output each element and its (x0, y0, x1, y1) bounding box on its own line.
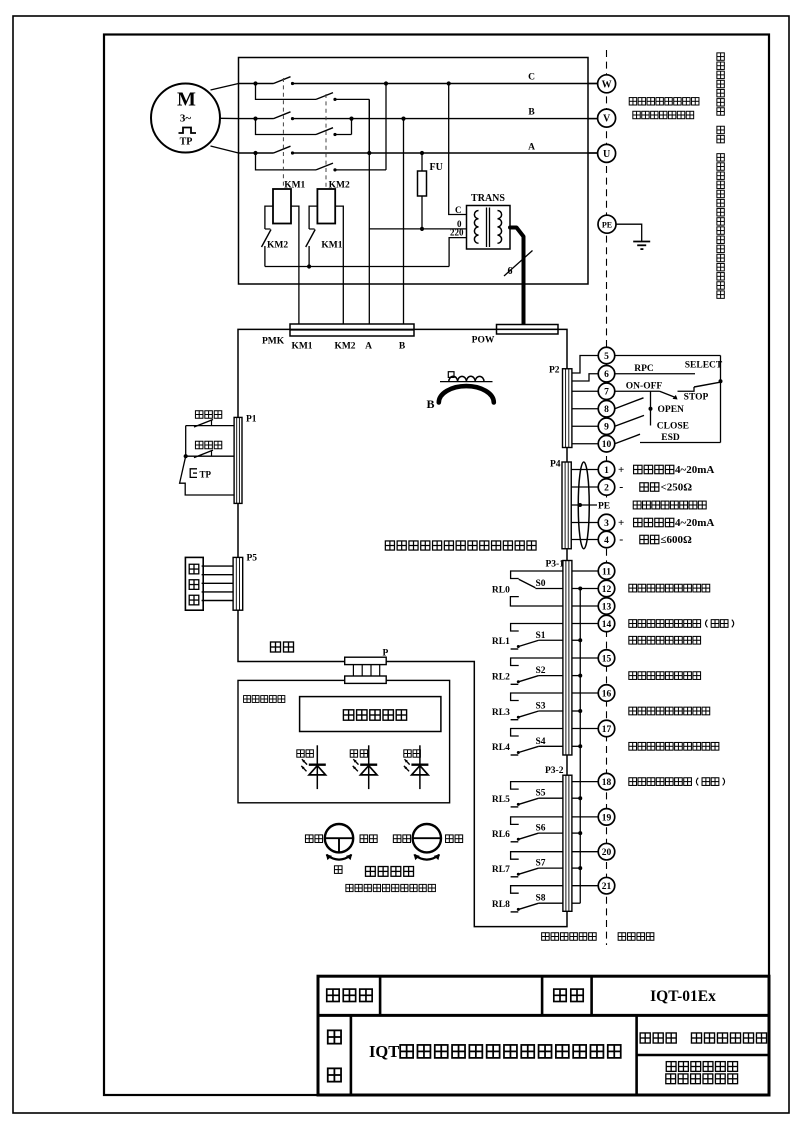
svg-text:14: 14 (602, 620, 612, 630)
svg-text:RL2: RL2 (492, 672, 510, 682)
svg-text:11: 11 (602, 567, 611, 577)
svg-text:A: A (365, 342, 372, 352)
svg-text:220: 220 (450, 228, 464, 238)
svg-text:12: 12 (602, 585, 612, 595)
svg-text:A: A (528, 143, 535, 153)
svg-text:M: M (177, 89, 196, 111)
svg-text:S8: S8 (536, 894, 546, 904)
svg-text:4: 4 (604, 536, 609, 546)
svg-text:W: W (602, 79, 612, 90)
svg-text:B: B (426, 397, 434, 411)
svg-text:P3-2: P3-2 (545, 766, 564, 776)
svg-text:RL4: RL4 (492, 743, 510, 753)
svg-text:C: C (528, 73, 535, 83)
svg-text:P2: P2 (549, 366, 560, 376)
svg-text:RL1: RL1 (492, 637, 510, 647)
svg-text:KM2: KM2 (267, 241, 288, 251)
svg-text:V: V (603, 114, 611, 125)
svg-text:TP: TP (200, 470, 212, 480)
svg-text:PE: PE (598, 501, 610, 511)
svg-text:KM1: KM1 (284, 181, 305, 191)
svg-text:KM1: KM1 (321, 241, 342, 251)
svg-text:TRANS: TRANS (471, 193, 505, 204)
svg-text:3: 3 (604, 519, 609, 529)
svg-text:IQT-01Ex: IQT-01Ex (650, 988, 716, 1005)
svg-text:RL8: RL8 (492, 900, 510, 910)
svg-text:13: 13 (602, 602, 612, 612)
svg-text:10: 10 (602, 440, 612, 450)
svg-text:P5: P5 (247, 554, 258, 564)
svg-text:RL5: RL5 (492, 795, 510, 805)
svg-text:-: - (619, 532, 623, 546)
svg-text:S0: S0 (536, 579, 546, 589)
svg-text:C: C (455, 205, 462, 215)
svg-text:TP: TP (180, 137, 193, 148)
svg-text:18: 18 (602, 778, 612, 788)
svg-text:PMK: PMK (262, 337, 285, 347)
svg-text:<250Ω: <250Ω (661, 482, 693, 494)
svg-text:S7: S7 (536, 859, 546, 869)
svg-text:U: U (603, 149, 610, 160)
svg-text:17: 17 (602, 725, 612, 735)
svg-text:15: 15 (602, 654, 612, 664)
svg-text:9: 9 (604, 423, 609, 433)
svg-text:3~: 3~ (180, 113, 192, 125)
svg-text:KM2: KM2 (329, 181, 350, 191)
svg-text:CLOSE: CLOSE (657, 422, 689, 432)
svg-text:6: 6 (508, 266, 513, 277)
svg-text:1: 1 (604, 466, 609, 476)
svg-text:P: P (383, 649, 389, 659)
svg-text:B: B (399, 342, 406, 352)
svg-text:RL6: RL6 (492, 830, 510, 840)
svg-text:-: - (619, 480, 623, 494)
svg-text:≤600Ω: ≤600Ω (661, 534, 693, 546)
svg-text:8: 8 (604, 405, 609, 415)
svg-text:P1: P1 (246, 415, 257, 425)
svg-text:KM2: KM2 (334, 342, 355, 352)
svg-text:S1: S1 (536, 631, 546, 641)
svg-text:P3-1: P3-1 (546, 560, 565, 570)
svg-text:STOP: STOP (684, 392, 709, 402)
svg-text:RL3: RL3 (492, 708, 510, 718)
svg-text:S3: S3 (536, 702, 546, 712)
svg-text:SELECT: SELECT (685, 361, 723, 371)
svg-text:RL7: RL7 (492, 865, 510, 875)
svg-text:5: 5 (604, 352, 609, 362)
svg-text:7: 7 (604, 388, 609, 398)
svg-text:S5: S5 (536, 789, 546, 799)
svg-text:21: 21 (602, 882, 612, 892)
svg-text:RL0: RL0 (492, 585, 510, 595)
svg-text:4~20mA: 4~20mA (675, 517, 714, 529)
svg-text:+: + (618, 517, 624, 529)
svg-text:ESD: ESD (661, 433, 680, 443)
svg-text:S2: S2 (536, 666, 546, 676)
svg-text:16: 16 (602, 689, 612, 699)
svg-text:IQT: IQT (369, 1042, 399, 1061)
svg-text:PE: PE (602, 220, 612, 229)
svg-text:20: 20 (602, 848, 612, 858)
svg-text:OPEN: OPEN (658, 405, 685, 415)
svg-text:S6: S6 (536, 824, 546, 834)
svg-text:ON-OFF: ON-OFF (626, 382, 663, 392)
svg-text:6: 6 (604, 370, 609, 380)
svg-text:4~20mA: 4~20mA (675, 464, 714, 476)
svg-text:+: + (618, 464, 624, 476)
svg-text:KM1: KM1 (291, 342, 312, 352)
svg-text:2: 2 (604, 483, 609, 493)
svg-text:B: B (528, 108, 535, 118)
svg-text:19: 19 (602, 813, 612, 823)
svg-text:RPC: RPC (634, 364, 654, 374)
svg-text:POW: POW (472, 336, 495, 346)
svg-text:S4: S4 (536, 737, 546, 747)
svg-text:P4: P4 (550, 460, 561, 470)
svg-text:FU: FU (430, 162, 443, 173)
